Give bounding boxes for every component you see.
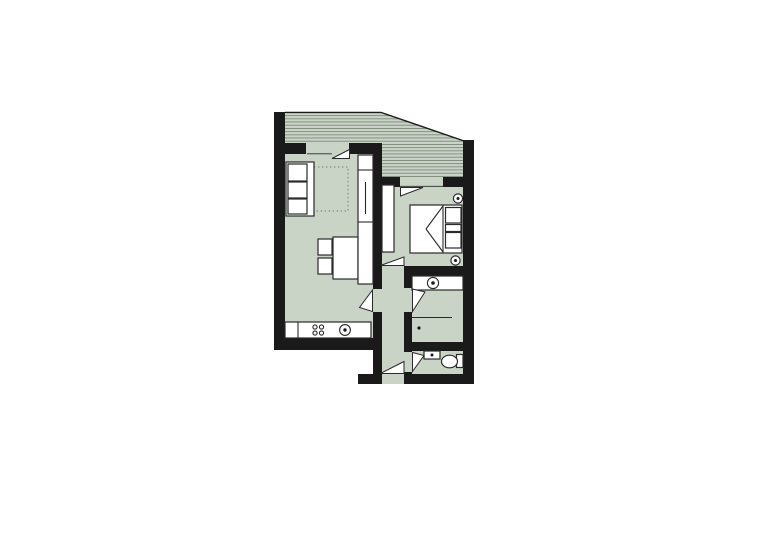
pillow xyxy=(446,208,462,224)
living-closet xyxy=(358,155,373,284)
wall-living-top-left xyxy=(274,143,306,154)
hand-basin-drain-dot xyxy=(431,354,434,357)
wall-wc-top xyxy=(412,342,463,351)
wc-door-threshold xyxy=(404,352,412,372)
floor-plan-page xyxy=(0,0,768,543)
bathroom-sink-drain-dot xyxy=(431,281,435,285)
wall-corridor-right-upper xyxy=(404,276,412,288)
wall-bottom-left-stub xyxy=(358,374,381,384)
bedroom-balcony-threshold xyxy=(400,177,443,187)
bed-headboard-shelf xyxy=(446,225,462,232)
bathroom-door-threshold xyxy=(404,288,412,312)
shower-drain xyxy=(417,326,420,329)
wall-lamp-dot xyxy=(457,197,460,200)
wall-living-bottom xyxy=(274,338,380,350)
pillow xyxy=(446,233,462,249)
living-balcony-threshold xyxy=(306,143,349,154)
chair xyxy=(318,258,332,274)
wall-lamp-dot xyxy=(454,259,457,262)
wall-corridor-right-mid xyxy=(404,312,412,352)
entrance-threshold xyxy=(381,374,404,384)
floor-plan xyxy=(0,0,768,543)
sofa-cushion xyxy=(288,199,307,214)
wall-bedroom-bottom xyxy=(404,266,463,276)
dining-table xyxy=(333,237,358,279)
corridor-floor xyxy=(381,276,404,374)
wall-separator-upper xyxy=(373,143,382,289)
bedroom-door-threshold xyxy=(381,266,404,276)
sofa-cushion xyxy=(288,164,307,181)
vanity-counter xyxy=(412,276,463,290)
chair xyxy=(318,239,332,255)
living-door-threshold xyxy=(373,289,381,312)
kitchen-sink-drain-dot xyxy=(343,328,346,331)
wall-right xyxy=(463,140,474,384)
toilet-bowl xyxy=(442,355,458,368)
wall-bottom-right xyxy=(404,374,474,384)
sofa-cushion xyxy=(288,182,307,198)
bedroom-wardrobe xyxy=(382,185,394,252)
